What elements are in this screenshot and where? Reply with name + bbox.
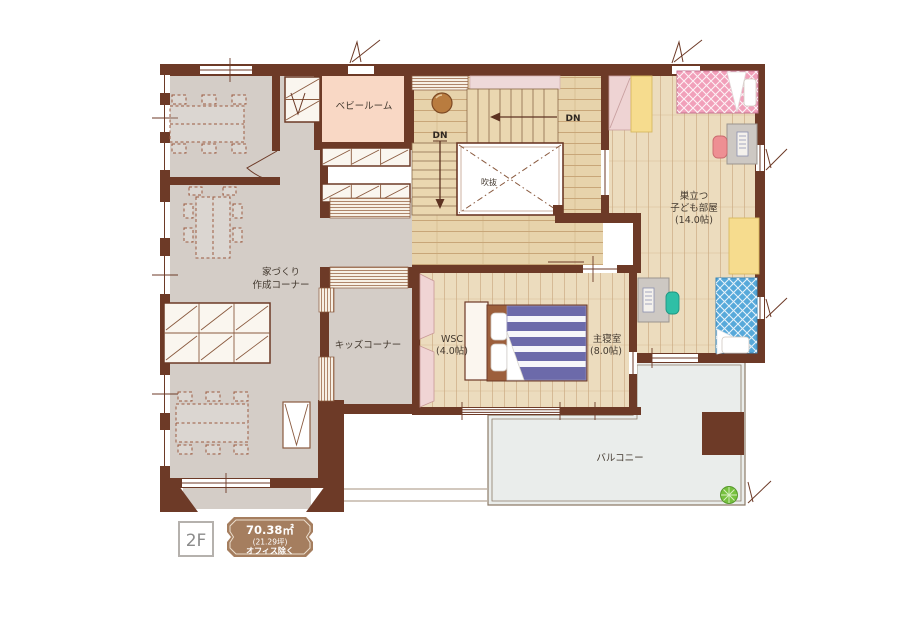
children-pink-closet (609, 76, 631, 130)
badge-note: オフィス除く (246, 546, 294, 556)
label-children-2: 子ども部屋 (670, 202, 718, 214)
counter-band-2 (330, 267, 408, 288)
pink-halfwall (470, 76, 560, 89)
label-master: 主寝室 (593, 333, 622, 345)
badge-area-sqm: 70.38㎡ (246, 523, 294, 537)
louver-band-landing (412, 76, 468, 90)
table-group-a (170, 95, 246, 153)
label-void: 吹抜 (481, 177, 497, 187)
wall-kids-bottom (318, 404, 420, 414)
label-baby-room: ベビールーム (336, 101, 393, 112)
stairs-lower-run (412, 141, 457, 215)
label-kids-corner: キッズコーナー (335, 339, 402, 351)
balcony-box (702, 412, 744, 455)
pink-chair (713, 136, 727, 158)
wall-hall-children (555, 213, 637, 223)
yellow-storage-1 (631, 76, 652, 132)
eave-lines (344, 489, 487, 501)
yellow-storage-2 (729, 218, 759, 274)
counter-band-1 (330, 198, 410, 218)
door-children-left (601, 150, 609, 195)
swing-mark-right-2 (766, 298, 787, 318)
floor-plan-page: ベビールーム 家づくり 作成コーナー キッズコーナー WSC (4.0帖) 主寝… (0, 0, 920, 620)
label-office-2: 作成コーナー (252, 279, 309, 291)
porch-floor (183, 487, 311, 509)
teal-chair (666, 292, 679, 314)
label-children-1: 巣立つ (680, 190, 709, 202)
badge-area-tsubo: (21.29坪) (253, 538, 288, 547)
pillow-1 (491, 313, 507, 340)
blue-bed (716, 278, 757, 354)
floor-plan-drawing: ベビールーム 家づくり 作成コーナー キッズコーナー WSC (4.0帖) 主寝… (0, 0, 920, 620)
wall-children-left-2 (601, 195, 609, 215)
shelf-block (164, 303, 270, 363)
wall-roomA-bottom (160, 177, 280, 185)
wall-jog (633, 213, 641, 273)
label-dn-top: DN (565, 114, 580, 124)
swing-mark-top-1 (350, 40, 380, 63)
floor-label: 2F (186, 531, 207, 551)
floor-label-box: 2F (179, 522, 213, 556)
plant (721, 487, 738, 504)
door-gap-top-1 (348, 66, 374, 74)
blue-bed-pillow (722, 337, 749, 353)
wall-post-3 (320, 310, 329, 357)
legend: 2F 70.38㎡ (21.29坪) オフィス除く (179, 517, 313, 557)
stairs-upper-run (467, 89, 558, 143)
wall-post-2 (320, 267, 330, 288)
door-panel-roomC (283, 402, 310, 448)
pillow-2 (491, 344, 507, 371)
louver-strip-2 (319, 357, 334, 401)
wall-bedroom-right (629, 265, 637, 415)
area-badge: 70.38㎡ (21.29坪) オフィス除く (227, 517, 313, 557)
void-area (457, 143, 563, 215)
wall-wsc-left (412, 265, 420, 414)
void-post (553, 205, 563, 215)
gap-bedroom-right (629, 352, 637, 374)
label-wsc-size: (4.0帖) (436, 345, 468, 357)
label-children-size: (14.0帖) (675, 214, 713, 226)
kids-corner-floor (326, 198, 418, 404)
label-office-1: 家づくり (262, 266, 300, 278)
closet-row-1 (322, 148, 410, 166)
label-balcony: バルコニー (596, 453, 643, 464)
pink-bed (677, 71, 758, 113)
swing-mark-top-2 (672, 40, 702, 63)
wall-wedge-right (306, 486, 344, 512)
louver-strip-1 (319, 288, 334, 312)
stool (432, 93, 452, 113)
swing-mark-right-1 (766, 149, 787, 170)
bed-headboard-closet (465, 302, 488, 380)
swing-mark-balcony (748, 481, 771, 503)
wall-children-left-1 (601, 67, 609, 150)
pink-bed-pillow (744, 79, 756, 106)
wall-roomA-right (272, 76, 280, 151)
label-wsc: WSC (441, 334, 463, 345)
label-master-size: (8.0帖) (590, 345, 622, 357)
master-bed (465, 302, 587, 381)
label-dn-left: DN (432, 131, 447, 141)
